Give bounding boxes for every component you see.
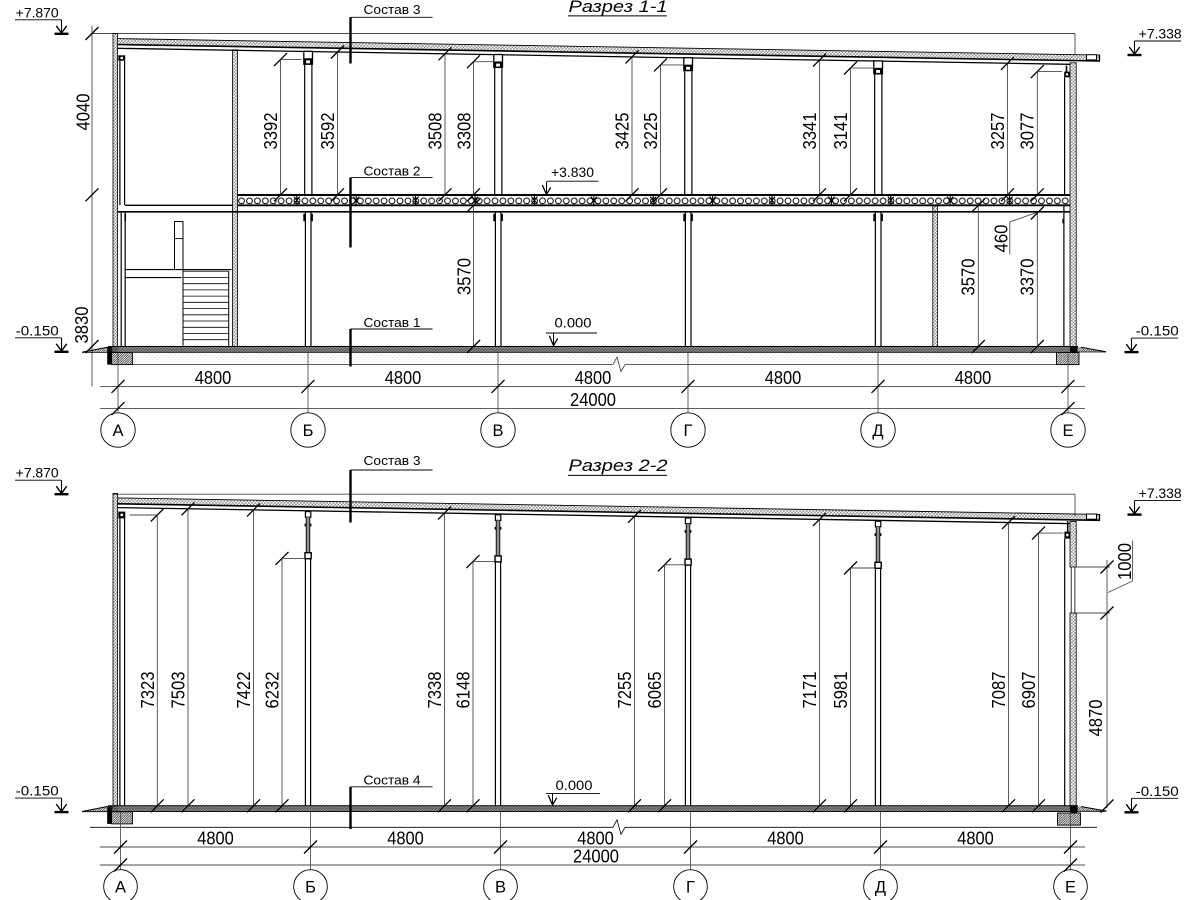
svg-text:Состав 4: Состав 4 [364,773,421,788]
svg-text:460: 460 [991,225,1012,253]
svg-text:Б: Б [303,422,314,440]
svg-text:Е: Е [1065,878,1076,896]
svg-text:Г: Г [684,422,693,440]
svg-text:В: В [492,422,503,440]
svg-text:Состав 3: Состав 3 [364,2,421,17]
svg-text:7087: 7087 [988,672,1009,709]
svg-text:3370: 3370 [1017,259,1038,296]
svg-text:-0.150: -0.150 [1136,324,1179,339]
svg-text:3592: 3592 [317,113,338,150]
svg-text:3257: 3257 [987,113,1008,150]
svg-text:Г: Г [686,878,695,896]
svg-text:4800: 4800 [387,827,424,848]
svg-text:7422: 7422 [233,672,254,709]
svg-text:-0.150: -0.150 [16,784,59,799]
svg-text:А: А [115,878,126,896]
svg-text:6232: 6232 [262,672,283,709]
svg-text:3225: 3225 [640,113,661,150]
svg-text:3570: 3570 [957,259,978,296]
svg-text:Состав 1: Состав 1 [364,315,421,330]
svg-text:4800: 4800 [197,827,234,848]
svg-text:6907: 6907 [1018,672,1039,709]
svg-text:Разрез 2-2: Разрез 2-2 [569,456,668,475]
svg-text:3508: 3508 [425,113,446,150]
svg-text:3308: 3308 [454,113,475,150]
svg-text:-0.150: -0.150 [16,323,59,338]
svg-text:3141: 3141 [830,113,851,150]
svg-text:24000: 24000 [573,846,619,867]
svg-text:Д: Д [872,422,883,440]
svg-text:0.000: 0.000 [556,778,593,793]
svg-text:-0.150: -0.150 [1136,784,1179,799]
svg-text:Д: Д [875,878,886,896]
svg-text:3570: 3570 [454,258,475,295]
svg-text:4800: 4800 [955,367,992,388]
svg-text:Б: Б [305,878,316,896]
svg-text:4800: 4800 [575,367,612,388]
svg-text:3077: 3077 [1017,113,1038,150]
svg-text:7323: 7323 [137,672,158,709]
svg-text:3425: 3425 [612,113,633,150]
svg-text:4800: 4800 [767,827,804,848]
svg-text:24000: 24000 [570,389,616,410]
svg-text:7171: 7171 [799,672,820,709]
svg-text:0.000: 0.000 [555,316,592,331]
svg-text:+7.870: +7.870 [16,466,59,481]
svg-text:+7.338: +7.338 [1139,27,1182,42]
svg-text:4800: 4800 [765,367,802,388]
svg-text:Е: Е [1062,422,1073,440]
svg-text:7338: 7338 [424,672,445,709]
svg-text:5981: 5981 [830,672,851,709]
svg-text:+3.830: +3.830 [551,165,594,180]
svg-text:Разрез 1-1: Разрез 1-1 [569,0,668,16]
svg-text:4800: 4800 [957,827,994,848]
svg-text:4870: 4870 [1085,700,1106,737]
svg-text:1000: 1000 [1114,543,1135,580]
svg-text:3392: 3392 [260,113,281,150]
svg-text:7503: 7503 [168,672,189,709]
svg-text:4040: 4040 [73,94,94,131]
svg-text:Состав 2: Состав 2 [364,164,421,179]
svg-text:4800: 4800 [195,367,232,388]
svg-text:3830: 3830 [71,307,92,344]
svg-text:3341: 3341 [799,113,820,150]
svg-text:4800: 4800 [385,367,422,388]
svg-text:6148: 6148 [453,672,474,709]
svg-text:6065: 6065 [644,672,665,709]
svg-text:А: А [112,422,123,440]
svg-text:В: В [495,878,506,896]
svg-text:+7.338: +7.338 [1139,486,1182,501]
svg-text:+7.870: +7.870 [16,5,59,20]
svg-text:Состав 3: Состав 3 [364,453,421,468]
svg-text:7255: 7255 [614,672,635,709]
